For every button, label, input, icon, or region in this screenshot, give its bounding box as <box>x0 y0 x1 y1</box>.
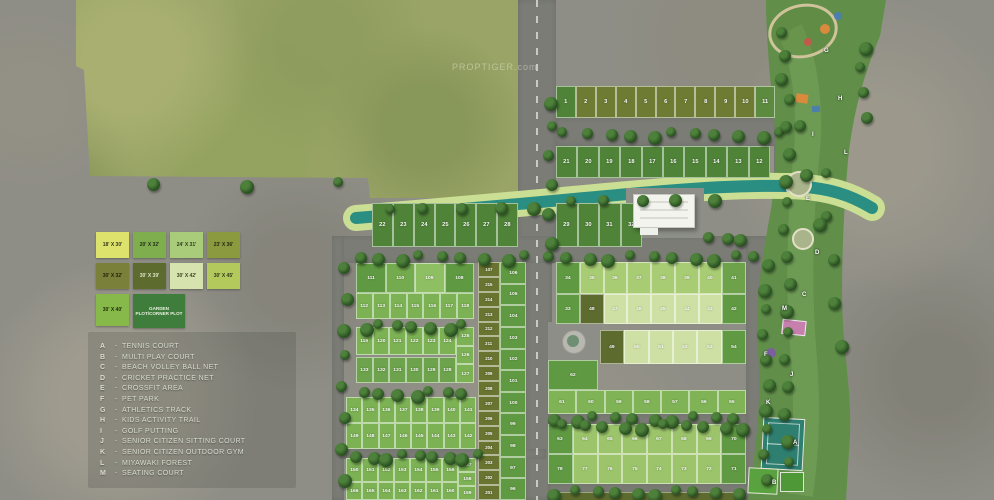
legend-swatch: 30' X 32' <box>96 263 129 289</box>
amenity-key: E <box>100 384 110 395</box>
plot-cell: 208 <box>478 381 500 396</box>
plot-number: 133 <box>360 367 368 373</box>
amenity-marker-D: D <box>815 250 819 256</box>
amenity-key: H <box>100 416 110 427</box>
plot-number: 35 <box>589 275 594 281</box>
plot-number: 36 <box>613 275 618 281</box>
plot-cell: 141 <box>460 397 476 423</box>
plot-cell: 52 <box>673 330 697 364</box>
legend-row: 18' X 30'20' X 32'24' X 31'23' X 36' <box>96 232 244 258</box>
plot-cell: 116 <box>423 293 440 319</box>
plot-number: 75 <box>632 466 637 472</box>
plot-number: 49 <box>609 344 614 350</box>
amenity-dash: - <box>110 459 122 470</box>
amenity-label: CRICKET PRACTICE NET <box>122 374 214 385</box>
open-field <box>0 0 530 210</box>
legend-swatch: GARDEN PLOT/CORNER PLOT <box>133 294 185 328</box>
plot-cell: 66 <box>622 424 647 454</box>
tree-icon <box>147 178 160 191</box>
amenity-label: SENIOR CITIZEN SITTING COURT <box>122 437 245 448</box>
plot-cell: 68 <box>672 424 697 454</box>
outdoor-gym-icon <box>792 228 814 250</box>
plot-cell: 58 <box>633 390 661 414</box>
plot-cell: 36 <box>604 262 628 294</box>
plot-number: 50 <box>634 344 639 350</box>
plot-cell: 12 <box>749 146 770 178</box>
plot-cell: 39 <box>675 262 699 294</box>
tree-icon <box>443 387 454 398</box>
tree-icon <box>779 354 790 365</box>
plot-cell: 160 <box>442 482 458 500</box>
plot-cell: 45 <box>651 294 675 324</box>
tree-icon <box>373 319 383 329</box>
plot-cell: 213 <box>478 307 500 322</box>
amenity-marker-H: H <box>838 96 842 102</box>
plot-cell: 97 <box>500 457 526 479</box>
plot-number: 42 <box>731 306 736 312</box>
playground-icon <box>795 93 808 104</box>
plot-cell: 136 <box>379 397 395 423</box>
plot-cell: 53 <box>697 330 721 364</box>
plot-cell: 206 <box>478 411 500 426</box>
amenity-key: C <box>100 363 110 374</box>
plot-cell: 73 <box>672 454 697 484</box>
plot-block-rb: 3348474645444342 <box>556 294 746 324</box>
plot-number: 58 <box>644 399 649 405</box>
plot-cell: 7 <box>675 86 695 118</box>
amenity-key: D <box>100 374 110 385</box>
plot-number: 56 <box>701 399 706 405</box>
tree-icon <box>333 177 343 187</box>
plot-number: 64 <box>582 436 587 442</box>
play-equipment-icon <box>820 24 830 34</box>
plot-cell: 142 <box>460 423 476 449</box>
plot-number: 73 <box>681 466 686 472</box>
plot-cell: 145 <box>411 423 427 449</box>
amenity-item: G-ATHLETICS TRACK <box>100 406 245 417</box>
plot-number: 115 <box>411 303 419 309</box>
plot-number: 19 <box>606 159 612 165</box>
plot-cell: 64 <box>573 424 598 454</box>
plot-number: 18 <box>628 159 634 165</box>
plot-cell: 120 <box>373 327 390 355</box>
amenity-item: D-CRICKET PRACTICE NET <box>100 374 245 385</box>
play-equipment-icon <box>834 12 842 20</box>
amenity-key: G <box>100 406 110 417</box>
plot-number: 130 <box>410 367 418 373</box>
plot-cell: 155 <box>426 458 442 482</box>
plot-cell: 51 <box>649 330 673 364</box>
practice-net-icon <box>780 472 804 492</box>
plot-number: 23 <box>400 222 406 228</box>
plot-number: 211 <box>485 341 492 346</box>
amenity-dash: - <box>110 342 122 353</box>
plot-number: 71 <box>731 466 736 472</box>
plot-cell: 106 <box>500 262 526 284</box>
plot-number: 72 <box>706 466 711 472</box>
plot-number: 44 <box>684 306 689 312</box>
plot-number: 6 <box>664 99 667 105</box>
plot-number: 108 <box>455 275 463 281</box>
tree-icon <box>444 323 458 337</box>
plot-number: 69 <box>706 436 711 442</box>
plot-cell: 96 <box>500 478 526 500</box>
plot-number: 205 <box>485 431 492 436</box>
amenity-dash: - <box>110 395 122 406</box>
amenity-key: L <box>100 459 110 470</box>
plot-number: 116 <box>428 303 436 309</box>
plot-number: 13 <box>735 159 741 165</box>
plot-cell: 75 <box>622 454 647 484</box>
plot-cell: 214 <box>478 292 500 307</box>
plot-number: 77 <box>582 466 587 472</box>
plot-cell: 20 <box>577 146 598 178</box>
tree-icon <box>861 112 873 124</box>
amenity-key: F <box>100 395 110 406</box>
plot-cell: 5 <box>636 86 656 118</box>
plot-number: 215 <box>485 282 492 287</box>
plot-number: 63 <box>558 436 563 442</box>
plot-number: 112 <box>360 303 368 309</box>
amenity-key: J <box>100 437 110 448</box>
plot-cell: 211 <box>478 336 500 351</box>
plot-cell: 42 <box>722 294 746 324</box>
plot-number: 37 <box>636 275 641 281</box>
plot-number: 148 <box>366 433 374 439</box>
plot-size-legend: 18' X 30'20' X 32'24' X 31'23' X 36'30' … <box>96 232 244 333</box>
plot-number: 55 <box>729 399 734 405</box>
plot-number: 30 <box>585 222 591 228</box>
plot-cell: 65 <box>598 424 623 454</box>
plot-cell: 205 <box>478 426 500 441</box>
plot-number: 139 <box>431 407 439 413</box>
plot-cell: 43 <box>699 294 723 324</box>
plot-number: 142 <box>464 433 472 439</box>
tree-icon <box>385 204 395 214</box>
plot-cell: 157 <box>458 458 476 472</box>
tree-icon <box>411 390 425 404</box>
plot-block-lb2: 133132131130129128 <box>356 357 456 383</box>
plot-cell: 21 <box>556 146 577 178</box>
tree-icon <box>405 321 417 333</box>
plot-number: 209 <box>485 371 492 376</box>
plot-number: 104 <box>509 313 517 319</box>
amenity-label: GOLF PUTTING <box>122 427 179 438</box>
plot-cell: 163 <box>394 482 410 500</box>
legend-swatch: 30' X 40' <box>96 294 129 326</box>
plot-block-s2: 10610510410310210110099989796 <box>500 262 526 500</box>
plot-cell: 14 <box>706 146 727 178</box>
plot-cell: 6 <box>656 86 676 118</box>
plot-block-rc: 495051525354 <box>600 330 746 364</box>
plot-number: 128 <box>444 367 452 373</box>
plot-cell: 140 <box>444 397 460 423</box>
amenity-key: I <box>100 427 110 438</box>
plot-cell: 110 <box>386 263 416 293</box>
plot-cell: 74 <box>647 454 672 484</box>
plot-cell: 202 <box>478 470 500 485</box>
plot-block-lc1: 134135136137138139140141 <box>346 397 476 423</box>
plot-number: 53 <box>707 344 712 350</box>
plot-number: 129 <box>427 367 435 373</box>
plot-cell: 35 <box>580 262 604 294</box>
plot-number: 21 <box>564 159 570 165</box>
plot-block-lb1: 119120121122123124 <box>356 327 456 355</box>
plot-cell: 11 <box>755 86 775 118</box>
plot-number: 70 <box>731 436 736 442</box>
plot-cell: 100 <box>500 392 526 414</box>
amenity-marker-M: M <box>782 306 787 312</box>
plot-cell: 123 <box>423 327 440 355</box>
plot-number: 34 <box>565 275 570 281</box>
plot-number: 140 <box>448 407 456 413</box>
site-plan-canvas: PROPTIGER.com 18' X 30'20' X 32'24' X 31… <box>0 0 994 500</box>
plot-cell: 55 <box>718 390 746 414</box>
plot-number: 27 <box>484 222 490 228</box>
plot-cell: 13 <box>727 146 748 178</box>
plot-cell: 40 <box>699 262 723 294</box>
plot-cell: 57 <box>661 390 689 414</box>
plot-cell: 161 <box>426 482 442 500</box>
tree-icon <box>417 203 428 214</box>
plot-number: 137 <box>399 407 407 413</box>
amenity-dash: - <box>110 374 122 385</box>
plot-cell: 144 <box>427 423 443 449</box>
plot-number: 213 <box>485 312 492 317</box>
amenity-label: ATHLETICS TRACK <box>122 406 192 417</box>
plot-number: 160 <box>446 488 454 494</box>
amenity-item: B-MULTI PLAY COURT <box>100 353 245 364</box>
plot-number: 155 <box>430 467 438 473</box>
plot-cell: 159 <box>458 486 476 500</box>
plot-number: 118 <box>462 303 470 309</box>
amenity-label: SEATING COURT <box>122 469 184 480</box>
plot-number: 161 <box>430 488 438 494</box>
plot-cell: 4 <box>616 86 636 118</box>
plot-cell: 34 <box>556 262 580 294</box>
plot-number: 162 <box>414 488 422 494</box>
road-right-block-1 <box>548 414 748 425</box>
plot-number: 107 <box>485 267 492 272</box>
legend-swatch: 30' X 39' <box>133 263 166 289</box>
plot-cell: 146 <box>395 423 411 449</box>
plot-cell: 8 <box>695 86 715 118</box>
plot-number: 106 <box>509 270 517 276</box>
amenity-dash: - <box>110 437 122 448</box>
plot-number: 201 <box>485 490 492 495</box>
tree-icon <box>495 202 508 215</box>
plot-number: 51 <box>658 344 663 350</box>
plot-cell: 154 <box>410 458 426 482</box>
road-dash-line <box>536 0 538 500</box>
plot-cell: 153 <box>394 458 410 482</box>
plot-number: 149 <box>350 433 358 439</box>
amenity-marker-L: L <box>844 150 848 156</box>
plot-cell: 104 <box>500 305 526 327</box>
multi-play-court-icon <box>781 319 806 336</box>
plot-number: 153 <box>398 467 406 473</box>
amenity-key: B <box>100 353 110 364</box>
plot-cell: 162 <box>410 482 426 500</box>
road-mid <box>340 236 780 263</box>
plot-cell: 37 <box>627 262 651 294</box>
plot-number: 121 <box>394 338 402 344</box>
plot-cell: 132 <box>373 357 390 383</box>
plot-block-s1: 1072152142132122112102092082072062052042… <box>478 262 500 500</box>
amenity-key: M <box>100 469 110 480</box>
tree-icon <box>360 323 374 337</box>
plot-number: 4 <box>624 99 627 105</box>
plot-cell: 103 <box>500 327 526 349</box>
plot-cell: 156 <box>442 458 458 482</box>
tree-icon <box>456 203 468 215</box>
amenity-label: TENNIS COURT <box>122 342 179 353</box>
plot-cell: 128 <box>439 357 456 383</box>
plot-cell: 60 <box>576 390 604 414</box>
tree-icon <box>821 168 831 178</box>
tree-icon <box>391 389 404 402</box>
tree-icon <box>455 388 467 400</box>
plot-cell: 1 <box>556 86 576 118</box>
plot-cell: 121 <box>389 327 406 355</box>
plot-number: 147 <box>383 433 391 439</box>
plot-cell: 150 <box>346 458 362 482</box>
plot-number: 57 <box>673 399 678 405</box>
clubhouse-building <box>633 194 695 228</box>
plot-number: 41 <box>731 275 736 281</box>
tree-icon <box>855 62 865 72</box>
plot-number: 2 <box>584 99 587 105</box>
plot-number: 124 <box>444 338 452 344</box>
plot-block-lbc: 125126127 <box>456 327 474 383</box>
plot-cell: 111 <box>356 263 386 293</box>
tree-icon <box>859 42 873 56</box>
tree-icon <box>821 211 832 222</box>
plot-cell: 15 <box>684 146 705 178</box>
plot-number: 54 <box>731 344 736 350</box>
amenity-label: CROSSFIT AREA <box>122 384 183 395</box>
plot-number: 14 <box>713 159 719 165</box>
plot-cell: 99 <box>500 413 526 435</box>
plot-number: 33 <box>565 306 570 312</box>
volley-ball-court-icon <box>747 467 778 495</box>
plot-number: 158 <box>463 476 471 482</box>
plot-number: 97 <box>510 465 515 471</box>
plot-number: 163 <box>398 488 406 494</box>
plot-number: 159 <box>463 490 471 496</box>
plot-number: 29 <box>564 222 570 228</box>
plot-cell: 41 <box>722 262 746 294</box>
plot-number: 22 <box>379 222 385 228</box>
tree-icon <box>780 305 794 319</box>
plot-number: 125 <box>461 333 469 339</box>
tree-icon <box>424 322 437 335</box>
tree-icon <box>566 196 576 206</box>
tree-icon <box>456 319 466 329</box>
plot-number: 65 <box>607 436 612 442</box>
plot-cell: 105 <box>500 284 526 306</box>
plot-cell: 158 <box>458 472 476 486</box>
plot-block-ldc: 157158159 <box>458 458 476 500</box>
plot-number: 151 <box>366 467 374 473</box>
amenity-dash: - <box>110 406 122 417</box>
plot-number: 150 <box>350 467 358 473</box>
amenity-label: KIDS ACTIVITY TRAIL <box>122 416 201 427</box>
amenity-marker-E: E <box>806 196 810 202</box>
plot-number: 101 <box>509 378 517 384</box>
legend-row: 30' X 32'30' X 39'30' X 42'30' X 45' <box>96 263 244 289</box>
plot-block-lc2: 149148147146145144143142 <box>346 423 476 449</box>
plot-number: 166 <box>350 488 358 494</box>
tree-icon <box>423 386 433 396</box>
plot-cell: 48 <box>580 294 604 324</box>
plot-number: 43 <box>708 306 713 312</box>
plot-number: 60 <box>588 399 593 405</box>
road-left-lower <box>340 449 546 459</box>
plot-number: 109 <box>426 275 434 281</box>
plot-cell: 2 <box>576 86 596 118</box>
plot-cell: 210 <box>478 351 500 366</box>
legend-swatch: 30' X 45' <box>207 263 240 289</box>
plot-cell: 134 <box>346 397 362 423</box>
plot-number: 25 <box>442 222 448 228</box>
plot-number: 111 <box>367 275 375 281</box>
plot-number: 1 <box>564 99 567 105</box>
road-right-top <box>774 80 792 246</box>
plot-number: 45 <box>660 306 665 312</box>
plot-number: 47 <box>613 306 618 312</box>
plot-cell: 44 <box>675 294 699 324</box>
plot-block-rf: 7877767574737271 <box>548 454 746 484</box>
plot-cell: 10 <box>735 86 755 118</box>
plot-cell: 70 <box>721 424 746 454</box>
plot-cell: 164 <box>378 482 394 500</box>
plot-number: 31 <box>607 222 613 228</box>
plot-cell: 16 <box>663 146 684 178</box>
plot-number: 127 <box>461 371 469 377</box>
tree-icon <box>794 120 806 132</box>
plot-cell: 3 <box>596 86 616 118</box>
amenity-item: M-SEATING COURT <box>100 469 245 480</box>
plot-number: 67 <box>657 436 662 442</box>
plot-cell: 67 <box>647 424 672 454</box>
plot-cell: 56 <box>689 390 717 414</box>
amenity-label: SENIOR CITIZEN OUTDOOR GYM <box>122 448 244 459</box>
plot-block-r2: 21201918171615141312 <box>556 146 770 178</box>
plot-cell: 137 <box>395 397 411 423</box>
plot-block-r1: 1234567891011 <box>556 86 775 118</box>
plot-number: 203 <box>485 460 492 465</box>
plot-number: 24 <box>421 222 427 228</box>
amenities-list: A-TENNIS COURTB-MULTI PLAY COURTC-BEACH … <box>100 342 245 480</box>
plot-block-ra: 3435363738394041 <box>556 262 746 294</box>
plot-number: 26 <box>463 222 469 228</box>
plot-number: 102 <box>509 357 517 363</box>
plot-cell: 71 <box>721 454 746 484</box>
plot-number: 20 <box>585 159 591 165</box>
amenity-item: A-TENNIS COURT <box>100 342 245 353</box>
plot-cell: 108 <box>445 263 475 293</box>
plot-cell: 215 <box>478 277 500 292</box>
plot-cell: 49 <box>600 330 624 364</box>
plot-number: 68 <box>681 436 686 442</box>
plot-cell: 77 <box>573 454 598 484</box>
plot-number: 114 <box>394 303 402 309</box>
tree-icon <box>392 320 403 331</box>
tree-icon <box>781 251 793 263</box>
plot-number: 62 <box>570 372 575 378</box>
plot-number: 120 <box>377 338 385 344</box>
